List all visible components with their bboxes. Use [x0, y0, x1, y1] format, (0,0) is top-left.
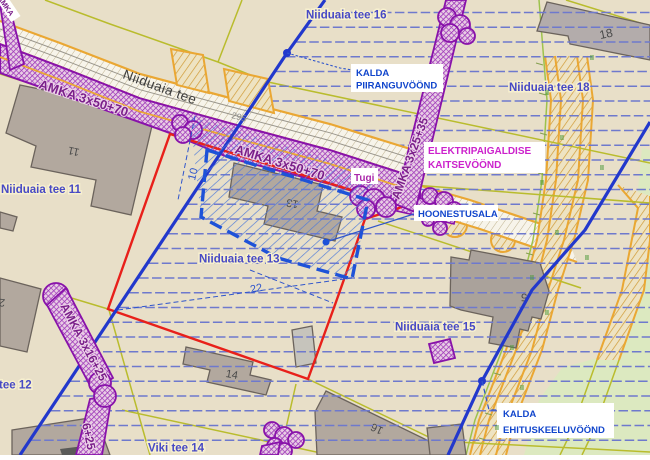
- svg-text:PIIRANGUVÖÖND: PIIRANGUVÖÖND: [356, 81, 437, 92]
- svg-text:tee 12: tee 12: [0, 380, 32, 392]
- svg-text:II: II: [560, 135, 564, 142]
- svg-text:Niiduaia tee 16: Niiduaia tee 16: [306, 10, 387, 22]
- svg-text:KALDA: KALDA: [356, 68, 389, 79]
- svg-text:ELEKTRIPAIGALDISE: ELEKTRIPAIGALDISE: [428, 146, 531, 157]
- svg-text:Niiduaia tee 13: Niiduaia tee 13: [199, 254, 280, 266]
- svg-text:Viki tee 14: Viki tee 14: [148, 443, 205, 455]
- svg-text:Tugi: Tugi: [354, 173, 375, 184]
- svg-text:2: 2: [0, 296, 6, 308]
- svg-text:II: II: [540, 180, 544, 187]
- svg-text:HOONESTUSALA: HOONESTUSALA: [418, 209, 498, 220]
- svg-text:II: II: [510, 345, 514, 352]
- svg-text:Niiduaia tee 15: Niiduaia tee 15: [395, 322, 476, 334]
- svg-text:II: II: [545, 90, 549, 97]
- svg-text:EHITUSKEELUVÖÖND: EHITUSKEELUVÖÖND: [503, 425, 605, 436]
- svg-text:14: 14: [225, 368, 239, 382]
- svg-text:KAITSEVÖÖND: KAITSEVÖÖND: [428, 158, 501, 171]
- svg-text:II: II: [520, 385, 524, 392]
- svg-text:KALDA: KALDA: [503, 409, 536, 420]
- svg-text:II: II: [495, 425, 499, 432]
- svg-text:II: II: [530, 275, 534, 282]
- svg-text:II: II: [600, 165, 604, 172]
- svg-text:II: II: [585, 255, 589, 262]
- svg-text:II: II: [545, 310, 549, 317]
- svg-text:II: II: [590, 55, 594, 62]
- svg-text:Niiduaia tee 11: Niiduaia tee 11: [1, 184, 82, 196]
- svg-text:11: 11: [67, 144, 81, 158]
- svg-text:22: 22: [249, 282, 263, 296]
- svg-text:Niiduaia tee 18: Niiduaia tee 18: [509, 82, 590, 94]
- svg-text:II: II: [555, 230, 559, 237]
